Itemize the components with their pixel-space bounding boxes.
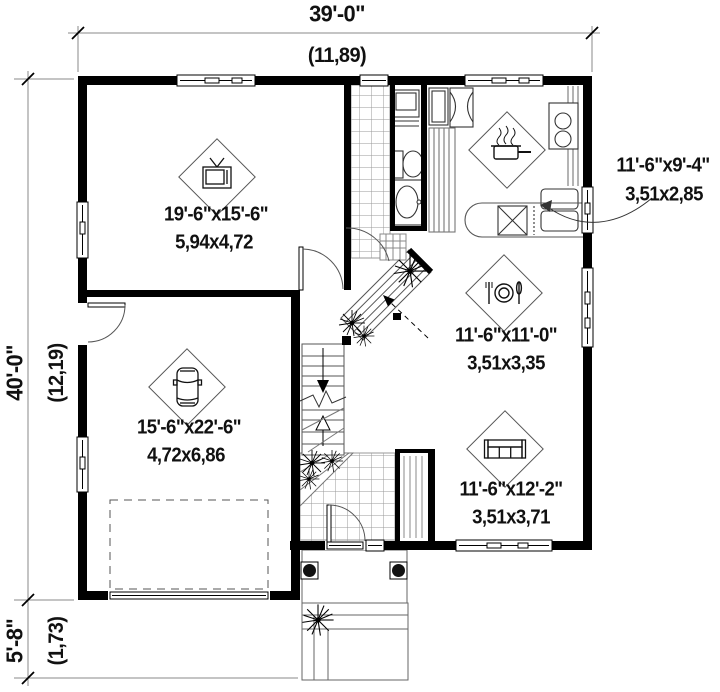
- garage-door-panel: [110, 592, 268, 599]
- wall-living-garage: [78, 290, 300, 297]
- kitchen-dims-metric: 3,51x2,85: [625, 184, 703, 207]
- garage-features: [110, 500, 268, 589]
- dining-room-dims-imperial: 11'-6"x11'-0": [455, 325, 557, 348]
- garage-dims-imperial: 15'-6"x22'-6": [137, 417, 241, 440]
- garage-dims-metric: 4,72x6,86: [147, 445, 225, 468]
- vestibule-tile-floor: [351, 85, 390, 258]
- wall-powder-bottom: [390, 226, 427, 231]
- window-vestibule-top: [360, 75, 388, 86]
- wall-garage-right: [291, 297, 300, 600]
- window-garage-left: [77, 437, 88, 492]
- window-kitchen-right: [582, 187, 593, 233]
- toilet: [392, 151, 423, 178]
- dim-stoop-imperial-label: 5'-8": [2, 619, 29, 663]
- wall-powder-right: [421, 85, 427, 231]
- dining-room-dims-metric: 3,51x3,35: [467, 353, 545, 376]
- kitchen-sink: [541, 189, 578, 231]
- dim-top-imperial-label: 39'-0": [309, 1, 365, 28]
- living-room-dims-imperial: 19'-6"x15'-6": [164, 204, 268, 227]
- closet-rod-lines: [404, 456, 422, 538]
- kitchen-dims-imperial: 11'-6"x9'-4": [616, 155, 709, 178]
- driveway-apron-dashed: [110, 500, 268, 589]
- bathroom-sink: [392, 180, 425, 225]
- sofa-icon: [467, 411, 543, 487]
- porch-post: [301, 562, 318, 579]
- fridge: [450, 88, 473, 127]
- counter-left: [429, 128, 455, 232]
- pantry-cabinet: [429, 88, 448, 125]
- stove: [549, 103, 578, 149]
- window-living-left: [77, 202, 88, 258]
- wall-living-right: [344, 85, 351, 290]
- powder-room-fixtures: [392, 90, 425, 225]
- winder-landing: [380, 234, 406, 260]
- porch-and-steps: [301, 550, 408, 680]
- wall-vestibule-right: [390, 85, 395, 231]
- dim-left-metric-label: (12,19): [45, 343, 69, 402]
- window-dining-right: [582, 268, 593, 347]
- dim-stoop-metric-label: (1,73): [45, 617, 69, 666]
- plate-cutlery-icon: [466, 255, 542, 331]
- porch-post: [390, 562, 407, 579]
- car-icon: [149, 349, 225, 425]
- dim-left-imperial-label: 40'-0": [2, 345, 29, 401]
- dishwasher: [498, 206, 534, 235]
- living-hall-door: [299, 247, 343, 290]
- family-room-dims-metric: 3,51x3,71: [472, 507, 550, 530]
- window-family-bottom: [456, 540, 552, 551]
- dim-top-metric-label: (11,89): [308, 44, 366, 68]
- window-kitchen-top: [465, 75, 543, 86]
- wall-family-left: [428, 449, 435, 541]
- living-room-dims-metric: 5,94x4,72: [175, 232, 253, 255]
- cooking-pot-icon: [469, 112, 545, 188]
- front-door-sill: [327, 542, 363, 549]
- family-room-dims-imperial: 11'-6"x12'-2": [459, 479, 562, 502]
- floor-plan-canvas: 39'-0" (11,89) 40'-0" (12,19) 5'-8" (1,7…: [0, 0, 720, 692]
- window-living-top: [177, 75, 255, 86]
- window-door-sidelite: [366, 540, 384, 551]
- floor-plan-drawing: [0, 0, 720, 692]
- wall-closet-left: [395, 449, 400, 541]
- garage-side-door: [88, 303, 125, 342]
